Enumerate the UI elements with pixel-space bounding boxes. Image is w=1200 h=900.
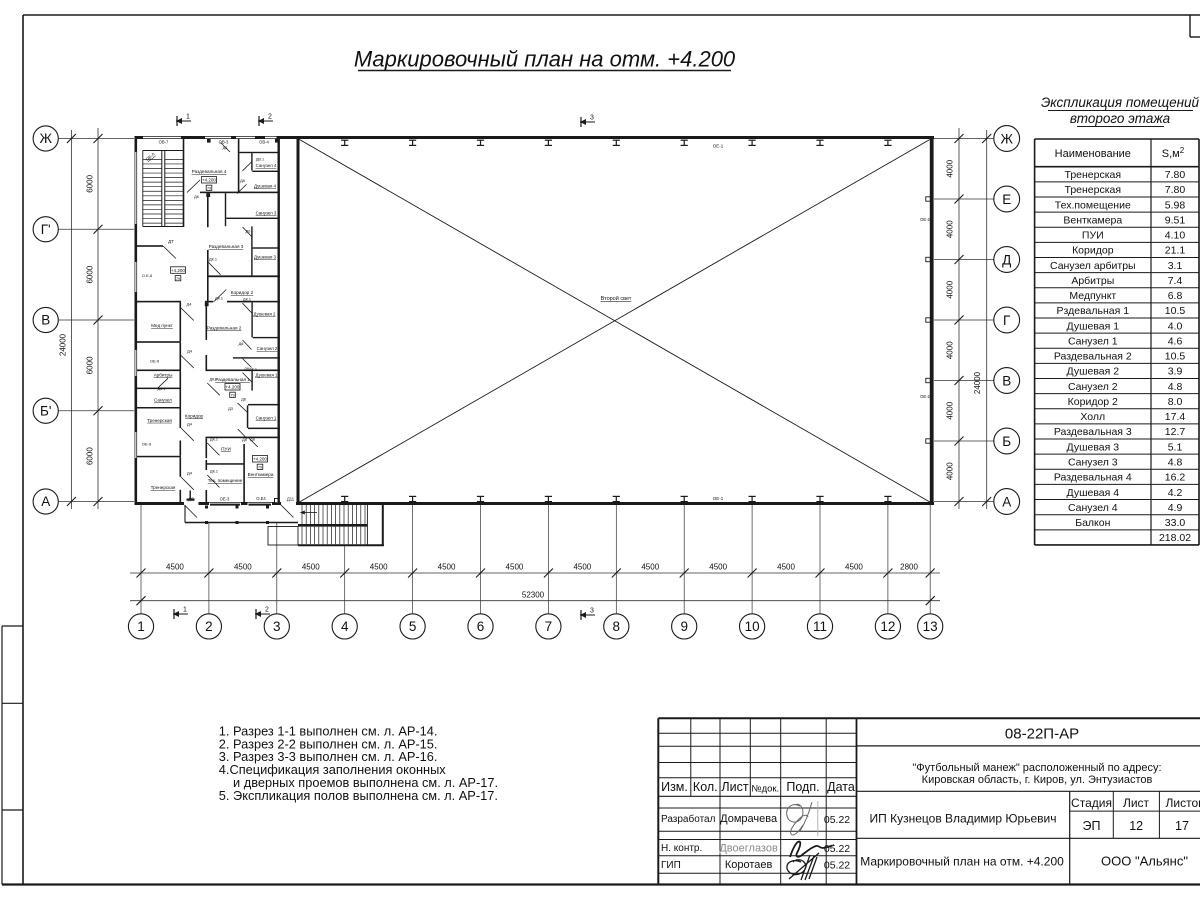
svg-text:+4.200: +4.200 <box>253 457 267 462</box>
svg-text:8.0: 8.0 <box>1168 396 1183 408</box>
svg-text:4500: 4500 <box>370 563 388 572</box>
svg-text:ОВ-3: ОВ-3 <box>219 140 229 145</box>
svg-text:Душевая 3: Душевая 3 <box>1066 441 1119 453</box>
svg-text:ОВ-7: ОВ-7 <box>159 140 169 145</box>
svg-text:Д8: Д8 <box>250 438 255 442</box>
svg-text:Листов: Листов <box>1166 796 1200 810</box>
svg-text:7.80: 7.80 <box>1165 184 1186 196</box>
svg-text:ОЕ-1: ОЕ-1 <box>713 144 724 149</box>
svg-text:Лист: Лист <box>1123 796 1150 810</box>
svg-text:ДК.1: ДК.1 <box>210 378 218 382</box>
svg-text:Д3: Д3 <box>228 407 233 411</box>
svg-text:2800: 2800 <box>900 563 918 572</box>
svg-text:4000: 4000 <box>946 280 955 298</box>
svg-text:ГИП: ГИП <box>661 860 681 871</box>
svg-text:Санузел 3: Санузел 3 <box>1068 457 1118 469</box>
svg-text:9.51: 9.51 <box>1165 214 1186 226</box>
svg-text:05.22: 05.22 <box>824 843 850 855</box>
svg-text:Санузел 3: Санузел 3 <box>256 211 277 216</box>
svg-text:ДВ.1: ДВ.1 <box>256 158 264 162</box>
svg-text:4500: 4500 <box>845 563 863 572</box>
svg-text:4.10: 4.10 <box>1165 230 1186 242</box>
svg-text:ОЕ-2: ОЕ-2 <box>920 217 930 222</box>
svg-text:12: 12 <box>880 619 895 634</box>
svg-text:Тренерская: Тренерская <box>151 485 176 490</box>
svg-text:+4.200: +4.200 <box>202 178 216 183</box>
svg-text:Мед пункт: Мед пункт <box>151 323 174 328</box>
svg-text:Маркировочный план на отм. +4.: Маркировочный план на отм. +4.200 <box>354 47 736 72</box>
svg-text:12.7: 12.7 <box>1165 426 1186 438</box>
svg-text:33.0: 33.0 <box>1165 517 1186 529</box>
svg-text:1: 1 <box>186 114 190 121</box>
svg-text:ИП Кузнецов Владимир Юрьевич: ИП Кузнецов Владимир Юрьевич <box>870 812 1057 826</box>
svg-text:1: 1 <box>183 607 187 614</box>
svg-text:4000: 4000 <box>946 159 955 177</box>
svg-text:Санузел: Санузел <box>154 398 172 403</box>
svg-text:№док.: №док. <box>751 784 779 795</box>
svg-text:Душевая 4: Душевая 4 <box>254 184 277 189</box>
svg-text:Кировская область, г. Киров, у: Кировская область, г. Киров, ул. Энтузиа… <box>922 774 1153 786</box>
svg-text:52300: 52300 <box>522 591 545 600</box>
svg-text:А: А <box>41 494 50 509</box>
svg-text:В: В <box>41 313 50 328</box>
svg-text:Санузел 4: Санузел 4 <box>256 163 277 168</box>
svg-text:Коридор: Коридор <box>1072 245 1114 257</box>
svg-text:Маркировочный план на отм. +4.: Маркировочный план на отм. +4.200 <box>860 855 1064 869</box>
svg-text:ДК.1: ДК.1 <box>249 367 257 371</box>
svg-text:Раздевальная 2: Раздевальная 2 <box>207 326 242 331</box>
svg-text:ОЕ-3: ОЕ-3 <box>220 497 230 502</box>
svg-text:4500: 4500 <box>641 563 659 572</box>
svg-text:ООО "Альянс": ООО "Альянс" <box>1101 854 1188 869</box>
svg-text:Е: Е <box>1002 192 1011 207</box>
svg-text:4000: 4000 <box>946 462 955 480</box>
svg-text:4.2: 4.2 <box>1168 487 1183 499</box>
svg-text:Д8: Д8 <box>241 397 246 401</box>
svg-text:ОВ-4: ОВ-4 <box>259 140 269 145</box>
svg-text:Д6: Д6 <box>194 195 199 199</box>
svg-text:Медпункт: Медпункт <box>1069 290 1116 302</box>
svg-text:Коридор 2: Коридор 2 <box>231 290 254 295</box>
svg-text:4500: 4500 <box>573 563 591 572</box>
svg-text:ОЕ-9: ОЕ-9 <box>142 442 152 447</box>
svg-text:3.9: 3.9 <box>1168 366 1183 378</box>
svg-text:Д4: Д4 <box>187 302 193 307</box>
svg-text:Б': Б' <box>40 403 51 418</box>
svg-text:4500: 4500 <box>166 563 184 572</box>
svg-text:Раздевальная 3: Раздевальная 3 <box>209 244 244 249</box>
svg-text:3: 3 <box>590 608 594 615</box>
svg-text:+4.200: +4.200 <box>226 385 240 390</box>
svg-text:2: 2 <box>205 619 213 634</box>
svg-text:79: 79 <box>230 393 234 397</box>
svg-text:Кол.: Кол. <box>693 780 718 794</box>
svg-text:4: 4 <box>341 619 349 634</box>
svg-text:4000: 4000 <box>946 401 955 419</box>
svg-text:Балкон: Балкон <box>1075 517 1110 529</box>
svg-text:ПУИ: ПУИ <box>221 447 231 452</box>
svg-text:7.4: 7.4 <box>1168 275 1183 287</box>
svg-text:4.0: 4.0 <box>1168 320 1183 332</box>
svg-text:Санузел 2: Санузел 2 <box>1068 381 1118 393</box>
svg-text:ДК.1: ДК.1 <box>215 297 223 301</box>
svg-text:4.8: 4.8 <box>1168 457 1183 469</box>
svg-text:Раздевальная 4: Раздевальная 4 <box>192 169 227 174</box>
svg-text:ДТ: ДТ <box>168 239 174 244</box>
svg-text:13: 13 <box>923 619 938 634</box>
svg-text:Второй свет: Второй свет <box>601 295 632 302</box>
svg-text:Коридор 2: Коридор 2 <box>1068 396 1118 408</box>
svg-text:ДК.1: ДК.1 <box>209 258 217 262</box>
svg-text:6000: 6000 <box>86 265 95 283</box>
svg-text:5: 5 <box>409 619 417 634</box>
svg-text:Раздевальная 4: Раздевальная 4 <box>1054 472 1132 484</box>
svg-text:4000: 4000 <box>946 220 955 238</box>
svg-text:Д11: Д11 <box>287 497 295 502</box>
svg-text:Наименование: Наименование <box>1055 148 1131 160</box>
svg-text:Душевая 1: Душевая 1 <box>256 373 279 378</box>
svg-text:ДК.1: ДК.1 <box>210 438 218 442</box>
svg-text:79: 79 <box>258 465 262 469</box>
svg-text:Г: Г <box>1003 313 1011 328</box>
svg-text:05.22: 05.22 <box>824 814 850 826</box>
svg-text:Санузел 2: Санузел 2 <box>257 346 278 351</box>
svg-text:Экспликация помещений: Экспликация помещений <box>1041 95 1200 110</box>
svg-text:Н. контр.: Н. контр. <box>661 843 702 854</box>
svg-text:Венткамера: Венткамера <box>1063 214 1122 226</box>
svg-text:4000: 4000 <box>946 341 955 359</box>
svg-text:ЭП: ЭП <box>1083 819 1101 833</box>
svg-text:ОЕ-6: ОЕ-6 <box>150 359 160 364</box>
svg-text:Санузел арбитры: Санузел арбитры <box>1050 260 1136 272</box>
svg-text:ДК.1: ДК.1 <box>243 298 251 302</box>
svg-text:Арбитры: Арбитры <box>154 373 173 378</box>
svg-text:7.80: 7.80 <box>1165 169 1186 181</box>
svg-text:Д4: Д4 <box>187 471 193 476</box>
svg-text:4500: 4500 <box>234 563 252 572</box>
svg-text:+4.200: +4.200 <box>171 268 185 273</box>
svg-text:24000: 24000 <box>973 371 982 394</box>
svg-text:6.8: 6.8 <box>1168 290 1183 302</box>
svg-text:Двоеглазов: Двоеглазов <box>719 843 778 855</box>
svg-text:17: 17 <box>1175 819 1189 833</box>
svg-text:Д8: Д8 <box>223 146 228 150</box>
svg-text:Душевая 2: Душевая 2 <box>254 312 277 317</box>
svg-text:Раздевальная 3: Раздевальная 3 <box>1054 426 1132 438</box>
svg-text:О.Е-6: О.Е-6 <box>142 273 153 278</box>
svg-text:05.22: 05.22 <box>824 860 850 872</box>
svg-text:6000: 6000 <box>86 447 95 465</box>
svg-text:10: 10 <box>745 619 760 634</box>
svg-text:Лист: Лист <box>721 780 748 794</box>
svg-text:218.02: 218.02 <box>1159 532 1191 544</box>
svg-text:Тренерская: Тренерская <box>1065 184 1122 196</box>
svg-text:Раздевальная 2: Раздевальная 2 <box>1054 351 1132 363</box>
svg-text:Домрачева: Домрачева <box>720 813 778 825</box>
svg-text:5.1: 5.1 <box>1168 441 1183 453</box>
svg-text:Д8: Д8 <box>239 342 244 346</box>
svg-text:Коротаев: Коротаев <box>725 859 773 871</box>
svg-text:5. Экспликация полов выполнена: 5. Экспликация полов выполнена см. л. АР… <box>219 788 498 803</box>
svg-text:Д: Д <box>1002 252 1011 267</box>
svg-text:10.5: 10.5 <box>1165 351 1186 363</box>
svg-text:Д4: Д4 <box>187 349 193 354</box>
svg-text:2: 2 <box>268 114 272 121</box>
svg-text:второго этажа: второго этажа <box>1070 111 1171 126</box>
svg-text:4500: 4500 <box>302 563 320 572</box>
svg-text:Душевая 2: Душевая 2 <box>1066 366 1119 378</box>
svg-text:ОЕ-1: ОЕ-1 <box>713 496 724 501</box>
svg-text:Холл: Холл <box>1080 411 1105 423</box>
svg-text:В: В <box>1002 373 1011 388</box>
svg-text:Тех.помещение: Тех.помещение <box>1055 199 1131 211</box>
svg-text:Д5.1: Д5.1 <box>158 387 166 391</box>
svg-text:Стадия: Стадия <box>1071 796 1112 810</box>
svg-text:17.4: 17.4 <box>1165 411 1186 423</box>
svg-text:10.5: 10.5 <box>1165 305 1186 317</box>
svg-text:Душевая 3: Душевая 3 <box>254 255 277 260</box>
svg-text:Душевая 1: Душевая 1 <box>1066 320 1119 332</box>
svg-text:11: 11 <box>813 619 827 634</box>
svg-text:79: 79 <box>176 277 180 281</box>
svg-text:5.98: 5.98 <box>1165 199 1186 211</box>
svg-text:Рздевальная 1: Рздевальная 1 <box>1057 305 1130 317</box>
svg-text:ПУИ: ПУИ <box>1082 230 1104 242</box>
svg-text:Д9: Д9 <box>188 497 194 502</box>
svg-text:Д4: Д4 <box>187 422 193 427</box>
svg-text:Арбитры: Арбитры <box>1071 275 1114 287</box>
svg-text:2: 2 <box>265 607 269 614</box>
svg-text:Душевая 4: Душевая 4 <box>1066 487 1119 499</box>
svg-text:4500: 4500 <box>506 563 524 572</box>
svg-text:Г': Г' <box>41 222 51 237</box>
svg-text:1: 1 <box>137 619 145 634</box>
svg-text:9: 9 <box>680 619 688 634</box>
svg-text:Д6: Д6 <box>246 230 251 234</box>
svg-text:12: 12 <box>1129 819 1143 833</box>
svg-text:Ж: Ж <box>1000 131 1013 146</box>
svg-text:79: 79 <box>207 186 211 190</box>
svg-text:Санузел 1: Санузел 1 <box>1068 335 1118 347</box>
svg-text:4.8: 4.8 <box>1168 381 1183 393</box>
svg-text:ДК.1: ДК.1 <box>210 470 218 474</box>
svg-text:6: 6 <box>477 619 485 634</box>
svg-text:16.2: 16.2 <box>1165 472 1186 484</box>
svg-text:Подп.: Подп. <box>786 780 819 794</box>
svg-text:4500: 4500 <box>438 563 456 572</box>
svg-text:Ж: Ж <box>39 131 52 146</box>
svg-text:Венткамера: Венткамера <box>248 472 274 477</box>
svg-text:Разработал: Разработал <box>661 813 716 825</box>
svg-text:ОЕ-2: ОЕ-2 <box>920 394 930 399</box>
svg-text:Коридор: Коридор <box>185 414 204 419</box>
svg-text:Д8: Д8 <box>240 179 245 183</box>
svg-text:4.6: 4.6 <box>1168 335 1183 347</box>
svg-text:Тренерская: Тренерская <box>1065 169 1122 181</box>
svg-text:08-22П-АР: 08-22П-АР <box>1005 726 1079 743</box>
svg-text:Раздевальная 1: Раздевальная 1 <box>215 377 250 382</box>
svg-text:6000: 6000 <box>86 174 95 192</box>
svg-text:"Футбольный манеж" расположенн: "Футбольный манеж" расположенный по адре… <box>912 762 1161 774</box>
svg-text:4.9: 4.9 <box>1168 502 1183 514</box>
svg-text:Санузел 4: Санузел 4 <box>1068 502 1118 514</box>
svg-text:Тренерская: Тренерская <box>147 418 172 423</box>
svg-text:6000: 6000 <box>86 356 95 374</box>
svg-text:3: 3 <box>273 619 281 634</box>
svg-text:8: 8 <box>613 619 621 634</box>
svg-text:3.1: 3.1 <box>1168 260 1183 272</box>
svg-text:21.1: 21.1 <box>1165 245 1186 257</box>
svg-text:Санузел 1: Санузел 1 <box>256 416 277 421</box>
svg-text:4500: 4500 <box>777 563 795 572</box>
svg-text:А: А <box>1002 494 1011 509</box>
svg-text:Изм.: Изм. <box>661 780 688 794</box>
svg-text:Д8: Д8 <box>242 438 247 442</box>
svg-text:О.Е4: О.Е4 <box>256 496 266 501</box>
svg-text:7: 7 <box>545 619 553 634</box>
svg-text:Дата: Дата <box>827 780 855 794</box>
svg-text:4500: 4500 <box>709 563 727 572</box>
svg-text:Б: Б <box>1002 434 1011 449</box>
svg-text:3: 3 <box>590 115 594 122</box>
svg-text:24000: 24000 <box>59 333 68 356</box>
